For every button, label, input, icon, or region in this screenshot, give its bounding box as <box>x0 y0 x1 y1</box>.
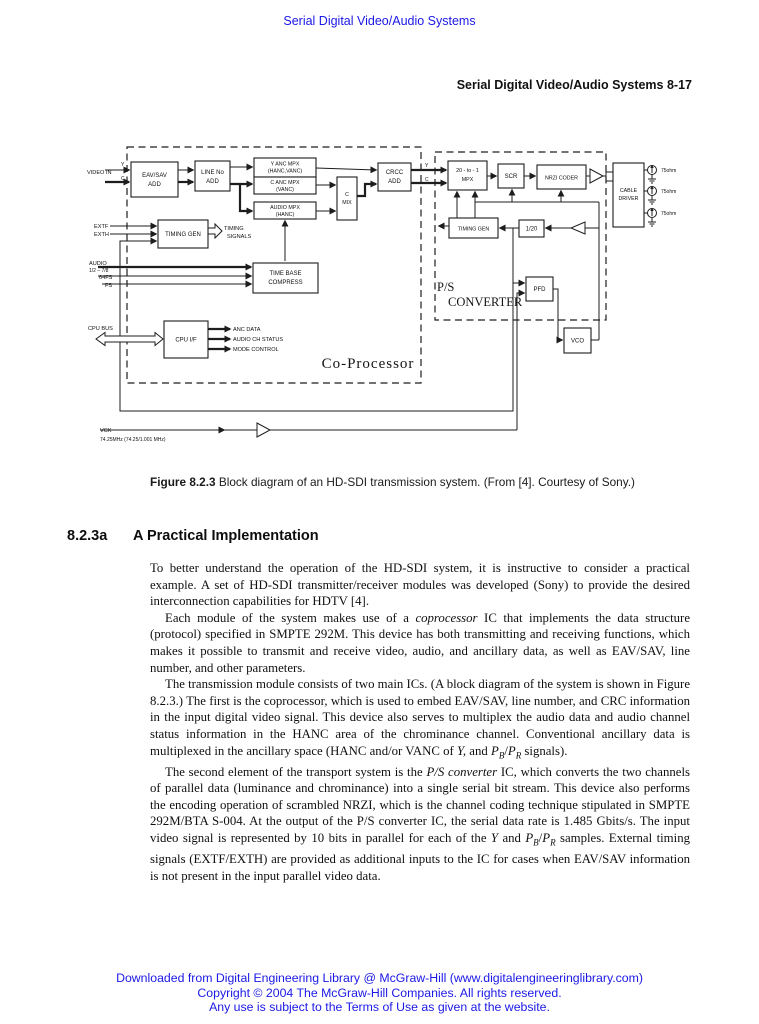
svg-text:PFD: PFD <box>534 287 547 293</box>
svg-text:(HANC): (HANC) <box>276 212 295 218</box>
svg-text:1/20: 1/20 <box>526 227 538 233</box>
block-time-base-compress: TIME BASE COMPRESS <box>253 263 318 293</box>
svg-text:CRCC: CRCC <box>386 170 404 176</box>
diagram-labels: VIDEO IN Y C EXTF EXTH TIMING SIGNALS AU… <box>87 162 676 443</box>
figure-caption-text: Block diagram of an HD-SDI transmission … <box>216 475 635 489</box>
svg-text:CABLE: CABLE <box>620 188 638 194</box>
svg-text:Y ANC MPX: Y ANC MPX <box>271 162 300 168</box>
paragraph-2: Each module of the system makes use of a… <box>150 610 690 676</box>
y-output-label: Y <box>425 163 429 169</box>
signal-wires <box>98 167 648 430</box>
timing-signals-label-2: SIGNALS <box>227 234 252 240</box>
exth-label: EXTH <box>94 232 109 238</box>
75ohm-label-3: 75ohm <box>661 211 676 217</box>
block-pfd: PFD <box>526 277 553 301</box>
cpu-bus-label: CPU BUS <box>88 326 113 332</box>
block-timing-gen-ps: TIMING GEN <box>449 218 498 238</box>
block-cpu-interface: CPU I/F <box>164 321 208 358</box>
svg-text:MPX: MPX <box>462 177 474 183</box>
svg-text:SCR: SCR <box>505 174 518 180</box>
svg-text:VCO: VCO <box>571 339 584 345</box>
c-output-label: C <box>425 177 429 183</box>
vck-frequency-label: 74.25MHz (74.25/1.001 MHz) <box>100 437 166 443</box>
block-cable-driver: CABLE DRIVER <box>613 163 644 227</box>
paragraph-4: The second element of the transport syst… <box>150 764 690 885</box>
clock-inverter-icon <box>571 222 585 234</box>
section-heading: 8.2.3aA Practical Implementation <box>67 528 687 544</box>
document-page: Serial Digital Video/Audio Systems Seria… <box>0 0 759 1024</box>
svg-text:AUDIO MPX: AUDIO MPX <box>270 205 300 211</box>
audio-label: AUDIO <box>89 261 107 267</box>
block-line-no-add: LINE No ADD <box>195 161 230 191</box>
64fs-label: 64FS <box>99 275 113 281</box>
svg-text:C ANC MPX: C ANC MPX <box>270 180 300 186</box>
cpu-bus-arrow-icon <box>96 333 163 346</box>
svg-text:MIX: MIX <box>342 200 352 206</box>
block-timing-gen-coprocessor: TIMING GEN <box>158 220 208 248</box>
block-nrzi-coder: NRZI CODER <box>537 165 586 189</box>
block-y-anc-mpx: Y ANC MPX (HANC,VANC) <box>254 158 316 177</box>
video-in-label: VIDEO IN <box>87 170 112 176</box>
top-navigation-link[interactable]: Serial Digital Video/Audio Systems <box>0 14 759 28</box>
audio-channels-label: 1/2 – 7/8 <box>89 268 109 274</box>
mode-control-label: MODE CONTROL <box>233 347 279 353</box>
body-text: To better understand the operation of th… <box>150 560 690 884</box>
block-vco: VCO <box>564 328 591 353</box>
anc-data-label: ANC DATA <box>233 327 261 333</box>
footer-line-2: Copyright © 2004 The McGraw-Hill Compani… <box>0 986 759 1001</box>
svg-text:ADD: ADD <box>206 179 219 185</box>
timing-signals-label-1: TIMING <box>224 226 244 232</box>
section-title: A Practical Implementation <box>133 528 319 544</box>
block-divide-by-20: 1/20 <box>519 220 544 237</box>
timing-signals-arrow-icon <box>208 224 222 238</box>
coax-connector-icons <box>648 165 657 226</box>
svg-text:(VANC): (VANC) <box>276 187 294 193</box>
coprocessor-label: Co-Processor <box>322 356 415 372</box>
block-crcc-add: CRCC ADD <box>378 163 411 191</box>
svg-text:C: C <box>345 192 349 198</box>
svg-text:ADD: ADD <box>148 182 161 188</box>
75ohm-label-1: 75ohm <box>661 168 676 174</box>
svg-text:ADD: ADD <box>388 179 401 185</box>
audio-ch-status-label: AUDIO CH STATUS <box>233 337 283 343</box>
block-audio-mpx: AUDIO MPX (HANC) <box>254 202 316 219</box>
footer-line-3: Any use is subject to the Terms of Use a… <box>0 1000 759 1015</box>
block-c-mix: C MIX <box>337 177 357 220</box>
svg-text:DRIVER: DRIVER <box>618 196 638 202</box>
block-eav-sav-add: EAV/SAV ADD <box>131 162 178 197</box>
section-number: 8.2.3a <box>67 528 133 544</box>
svg-text:LINE No: LINE No <box>201 170 224 176</box>
svg-text:20 - to - 1: 20 - to - 1 <box>456 168 479 174</box>
svg-text:EAV/SAV: EAV/SAV <box>142 173 167 179</box>
figure-caption: Figure 8.2.3 Block diagram of an HD-SDI … <box>150 475 690 489</box>
fs-label: FS <box>105 283 112 289</box>
svg-text:CPU I/F: CPU I/F <box>175 338 197 344</box>
svg-text:COMPRESS: COMPRESS <box>268 280 302 286</box>
y-input-label: Y <box>121 162 125 168</box>
vck-buffer-icon <box>257 423 270 437</box>
svg-text:NRZI CODER: NRZI CODER <box>545 176 578 182</box>
block-c-anc-mpx: C ANC MPX (VANC) <box>254 177 316 194</box>
ps-converter-label-2: CONVERTER <box>448 295 523 309</box>
running-header: Serial Digital Video/Audio Systems 8-17 <box>457 78 692 92</box>
svg-text:TIMING GEN: TIMING GEN <box>458 227 490 233</box>
ps-converter-label-1: P/S <box>437 280 454 294</box>
output-buffer-icon <box>590 169 603 183</box>
paragraph-3: The transmission module consists of two … <box>150 676 690 764</box>
75ohm-label-2: 75ohm <box>661 189 676 195</box>
c-input-label: C <box>121 176 125 182</box>
block-diagram-figure: EAV/SAV ADD LINE No ADD Y ANC MPX (HANC,… <box>80 133 725 455</box>
footer-line-1[interactable]: Downloaded from Digital Engineering Libr… <box>0 971 759 986</box>
block-scrambler: SCR <box>498 164 524 188</box>
svg-text:TIMING GEN: TIMING GEN <box>165 232 201 238</box>
block-20-to-1-mpx: 20 - to - 1 MPX <box>448 161 487 190</box>
vck-label: VCK <box>100 428 112 434</box>
svg-text:(HANC,VANC): (HANC,VANC) <box>268 169 303 175</box>
svg-text:TIME BASE: TIME BASE <box>269 271 301 277</box>
footer-notice: Downloaded from Digital Engineering Libr… <box>0 971 759 1015</box>
extf-label: EXTF <box>94 224 109 230</box>
figure-caption-number: Figure 8.2.3 <box>150 475 216 489</box>
paragraph-1: To better understand the operation of th… <box>150 560 690 610</box>
